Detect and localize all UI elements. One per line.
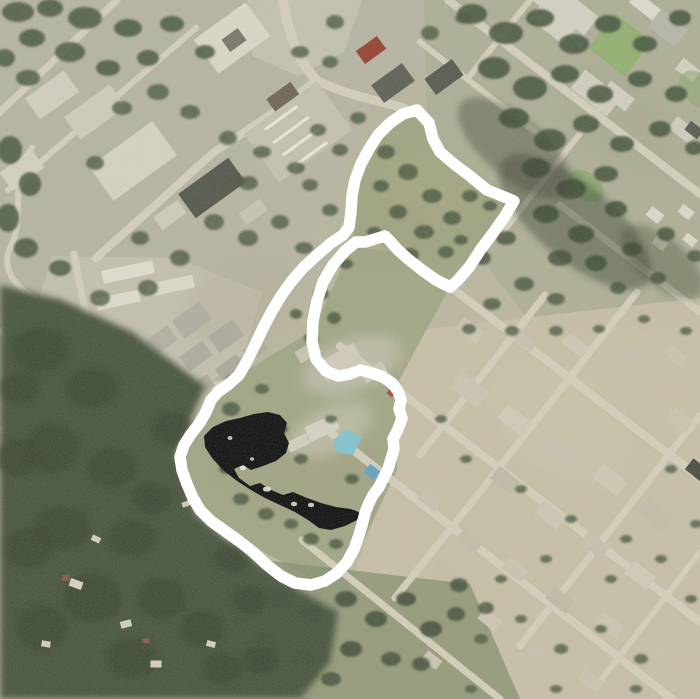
scene-layers — [0, 0, 700, 699]
screenshot-root — [0, 0, 700, 699]
aerial-map-canvas[interactable] — [0, 0, 700, 699]
film-grain — [0, 0, 700, 699]
grain-texture — [0, 0, 700, 699]
